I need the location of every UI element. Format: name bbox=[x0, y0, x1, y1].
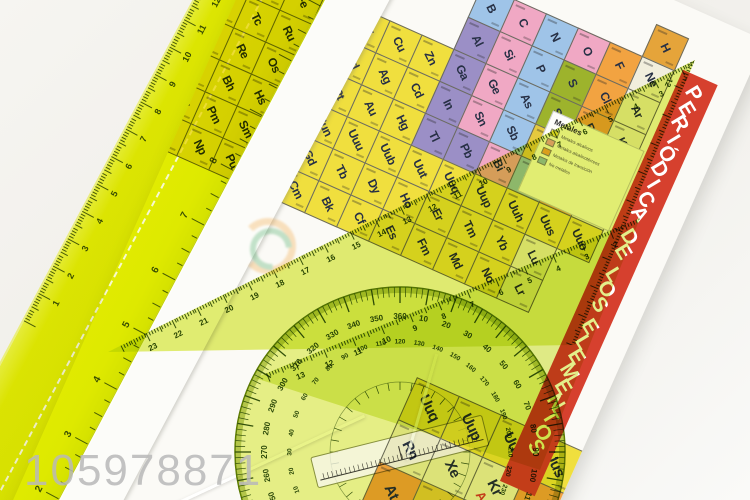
scale-tick bbox=[683, 78, 687, 80]
scale-tick bbox=[587, 240, 589, 244]
element-symbol: N bbox=[547, 30, 563, 43]
scale-tick bbox=[501, 275, 503, 279]
scale-tick bbox=[177, 263, 183, 267]
element-symbol: S bbox=[565, 77, 581, 90]
watermark-number: 105978871 bbox=[24, 446, 262, 496]
element-symbol: Tl bbox=[426, 129, 443, 144]
scale-tick bbox=[240, 138, 248, 143]
scale-tick bbox=[529, 264, 531, 268]
scale-tick bbox=[662, 127, 666, 129]
element-symbol: C bbox=[515, 16, 531, 29]
scale-tick bbox=[639, 181, 643, 183]
scale-number: 2 bbox=[612, 240, 620, 250]
scale-tick bbox=[644, 170, 648, 172]
scale-tick bbox=[558, 252, 560, 256]
element-symbol: B bbox=[483, 2, 499, 15]
scale-tick bbox=[104, 400, 110, 404]
scale-number: 16 bbox=[325, 252, 337, 264]
scale-tick bbox=[504, 274, 506, 278]
scale-tick bbox=[632, 221, 634, 225]
scale-tick bbox=[191, 236, 197, 240]
scale-number: 5 bbox=[607, 114, 615, 124]
supplier-watermark-logo bbox=[240, 218, 296, 274]
scale-number: 22 bbox=[172, 328, 184, 340]
scale-tick bbox=[686, 70, 690, 72]
scale-tick bbox=[666, 118, 670, 120]
protractor: 9021010022011023012024013025014026015027… bbox=[230, 282, 570, 500]
scale-tick bbox=[640, 178, 644, 180]
scale-tick bbox=[628, 207, 632, 209]
scale-number: 5 bbox=[120, 320, 132, 330]
scale-tick bbox=[152, 303, 160, 308]
scale-tick bbox=[660, 133, 664, 135]
scale-tick bbox=[615, 228, 617, 232]
scale-tick bbox=[678, 90, 682, 92]
scale-tick bbox=[269, 84, 277, 89]
element-symbol: Ag bbox=[375, 66, 394, 86]
scale-tick bbox=[570, 247, 572, 251]
scale-number: 10 bbox=[180, 50, 194, 64]
scale-number: 9 bbox=[505, 165, 513, 175]
scale-tick bbox=[293, 44, 299, 48]
scale-number: 21 bbox=[198, 316, 210, 328]
scale-number: 11 bbox=[195, 23, 208, 36]
scale-tick bbox=[635, 220, 637, 224]
scale-tick bbox=[575, 245, 577, 249]
scale-number: 4 bbox=[91, 375, 103, 385]
scale-tick bbox=[689, 64, 693, 66]
scale-tick bbox=[162, 290, 168, 294]
scale-tick bbox=[651, 153, 655, 155]
scale-tick bbox=[512, 271, 514, 275]
scale-number: 9 bbox=[167, 80, 178, 89]
scale-tick bbox=[264, 99, 270, 103]
scale-number: 4 bbox=[555, 264, 563, 274]
scale-tick bbox=[206, 208, 212, 212]
scale-tick bbox=[308, 0, 321, 7]
scale-tick bbox=[654, 147, 658, 149]
element-symbol: As bbox=[517, 91, 536, 110]
scale-tick bbox=[648, 161, 652, 163]
element-symbol: Bk bbox=[318, 194, 337, 213]
element-symbol: Si bbox=[501, 47, 518, 62]
scale-tick bbox=[675, 96, 679, 98]
scale-tick bbox=[250, 109, 263, 116]
scale-number: 4 bbox=[94, 217, 105, 226]
scale-tick bbox=[249, 126, 255, 130]
scale-tick bbox=[665, 121, 669, 123]
scale-tick bbox=[584, 241, 586, 245]
scale-number: 12 bbox=[663, 77, 675, 89]
scale-tick bbox=[671, 107, 675, 109]
scale-tick bbox=[634, 193, 638, 195]
element-symbol: Uut bbox=[410, 157, 431, 180]
element-symbol: Sn bbox=[471, 109, 490, 128]
element-symbol: Ga bbox=[453, 63, 472, 83]
scale-tick bbox=[521, 267, 523, 271]
scale-tick bbox=[663, 124, 667, 126]
scale-number: 11 bbox=[452, 189, 464, 201]
scale-number: 23 bbox=[147, 341, 159, 353]
scale-tick bbox=[592, 237, 594, 241]
element-symbol: Cu bbox=[389, 34, 408, 54]
element-symbol: In bbox=[440, 97, 457, 112]
scale-tick bbox=[572, 246, 574, 250]
scale-tick bbox=[658, 136, 662, 138]
scale-tick bbox=[630, 222, 632, 226]
scale-number: 12 bbox=[209, 0, 223, 9]
scale-tick bbox=[221, 163, 234, 170]
degree-label: 120 bbox=[395, 339, 406, 346]
scale-tick bbox=[590, 239, 592, 243]
scale-tick bbox=[626, 213, 630, 215]
scale-tick bbox=[668, 113, 672, 115]
scale-tick bbox=[680, 84, 684, 86]
scale-number: 2 bbox=[65, 271, 76, 280]
scale-tick bbox=[235, 153, 241, 157]
scale-tick bbox=[621, 225, 623, 229]
scale-tick bbox=[598, 235, 600, 239]
scale-tick bbox=[118, 372, 124, 376]
scale-tick bbox=[604, 233, 606, 237]
scale-tick bbox=[684, 76, 688, 78]
degree-label: 90 bbox=[531, 448, 540, 457]
scale-tick bbox=[627, 210, 631, 212]
element-symbol: P bbox=[533, 62, 549, 75]
scale-tick bbox=[191, 218, 204, 225]
scale-tick bbox=[674, 98, 678, 100]
element-symbol: Zn bbox=[422, 49, 441, 67]
element-symbol: Au bbox=[361, 98, 380, 118]
element-symbol: Uuu bbox=[345, 127, 367, 153]
element-symbol: Sb bbox=[503, 123, 522, 142]
scale-tick bbox=[104, 382, 117, 389]
scale-tick bbox=[633, 196, 637, 198]
element-symbol: F bbox=[611, 59, 627, 71]
scale-tick bbox=[94, 412, 102, 417]
scale-tick bbox=[532, 262, 534, 266]
scale-tick bbox=[669, 110, 673, 112]
scale-number: 14 bbox=[376, 227, 388, 239]
scale-tick bbox=[624, 218, 628, 220]
scale-tick bbox=[547, 256, 549, 260]
element-symbol: Ge bbox=[485, 77, 504, 97]
scale-tick bbox=[622, 221, 626, 223]
scale-tick bbox=[564, 249, 566, 253]
scale-tick bbox=[656, 141, 660, 143]
scale-tick bbox=[527, 265, 529, 269]
element-symbol: O bbox=[579, 44, 595, 58]
scale-number: 8 bbox=[152, 107, 163, 116]
scale-number: 6 bbox=[581, 127, 589, 137]
element-symbol: Tb bbox=[333, 163, 352, 181]
element-symbol: Hg bbox=[393, 112, 412, 132]
scale-tick bbox=[555, 253, 557, 257]
degree-label: 30 bbox=[287, 448, 294, 456]
scale-tick bbox=[162, 273, 175, 280]
scale-tick bbox=[518, 268, 520, 272]
scale-number: 3 bbox=[583, 252, 591, 262]
scale-tick bbox=[298, 29, 306, 34]
scale-tick bbox=[657, 138, 661, 140]
scale-tick bbox=[677, 93, 681, 95]
scale-tick bbox=[541, 259, 543, 263]
scale-tick bbox=[646, 164, 650, 166]
scale-number: 3 bbox=[62, 429, 74, 439]
scale-number: 5 bbox=[109, 189, 120, 198]
scale-tick bbox=[672, 104, 676, 106]
scale-tick bbox=[279, 54, 292, 61]
element-symbol: Uub bbox=[377, 141, 399, 167]
scale-tick bbox=[549, 255, 551, 259]
scale-number: 7 bbox=[179, 210, 191, 220]
scale-number: 7 bbox=[556, 140, 564, 150]
scale-tick bbox=[638, 184, 642, 186]
scale-tick bbox=[279, 71, 285, 75]
scale-tick bbox=[645, 167, 649, 169]
scale-number: 15 bbox=[350, 240, 362, 252]
scale-tick bbox=[612, 229, 614, 233]
scale-tick bbox=[308, 17, 314, 21]
scale-number: 4 bbox=[632, 102, 640, 112]
scale-tick bbox=[498, 277, 500, 281]
scale-tick bbox=[24, 320, 36, 327]
scale-tick bbox=[507, 273, 509, 277]
scale-tick bbox=[607, 231, 609, 235]
scale-tick bbox=[681, 81, 685, 83]
scale-tick bbox=[181, 248, 189, 253]
scale-tick bbox=[650, 156, 654, 158]
scale-tick bbox=[578, 243, 580, 247]
scale-tick bbox=[220, 181, 226, 185]
scale-tick bbox=[515, 270, 517, 274]
scale-number: 10 bbox=[477, 177, 489, 189]
scale-number: 12 bbox=[427, 202, 439, 214]
product-photo-scene: HBCNOFNeAlSiPSClArCrMnFeCoNiCuZnGaGeAsSe… bbox=[0, 0, 750, 500]
element-symbol: Dy bbox=[365, 177, 384, 196]
scale-tick bbox=[627, 223, 629, 227]
scale-number: 17 bbox=[299, 265, 311, 277]
scale-number: 6 bbox=[150, 265, 162, 275]
scale-tick bbox=[642, 176, 646, 178]
element-symbol: Pb bbox=[457, 141, 476, 160]
degree-label: 210 bbox=[506, 447, 513, 458]
scale-number: 6 bbox=[123, 162, 134, 171]
scale-number: 3 bbox=[80, 244, 91, 253]
scale-number: 7 bbox=[138, 134, 149, 143]
scale-tick bbox=[561, 250, 563, 254]
scale-tick bbox=[123, 357, 131, 362]
element-symbol: H bbox=[657, 41, 673, 54]
element-symbol: Al bbox=[468, 32, 485, 48]
scale-tick bbox=[133, 328, 146, 335]
scale-number: 1 bbox=[50, 299, 61, 308]
scale-number: 8 bbox=[208, 156, 220, 166]
element-symbol: Cd bbox=[407, 80, 426, 100]
scale-tick bbox=[75, 437, 88, 444]
scale-tick bbox=[636, 190, 640, 192]
scale-number: 13 bbox=[401, 214, 413, 226]
scale-tick bbox=[630, 204, 634, 206]
scale-tick bbox=[210, 193, 218, 198]
scale-number: 8 bbox=[530, 152, 538, 162]
degree-label: 360 bbox=[393, 312, 407, 321]
scale-tick bbox=[148, 318, 154, 322]
scale-tick bbox=[89, 427, 95, 431]
scale-tick bbox=[544, 258, 546, 262]
scale-tick bbox=[652, 150, 656, 152]
scale-tick bbox=[687, 67, 691, 69]
scale-tick bbox=[632, 198, 636, 200]
scale-tick bbox=[601, 234, 603, 238]
scale-tick bbox=[535, 261, 537, 265]
scale-tick bbox=[618, 227, 620, 231]
